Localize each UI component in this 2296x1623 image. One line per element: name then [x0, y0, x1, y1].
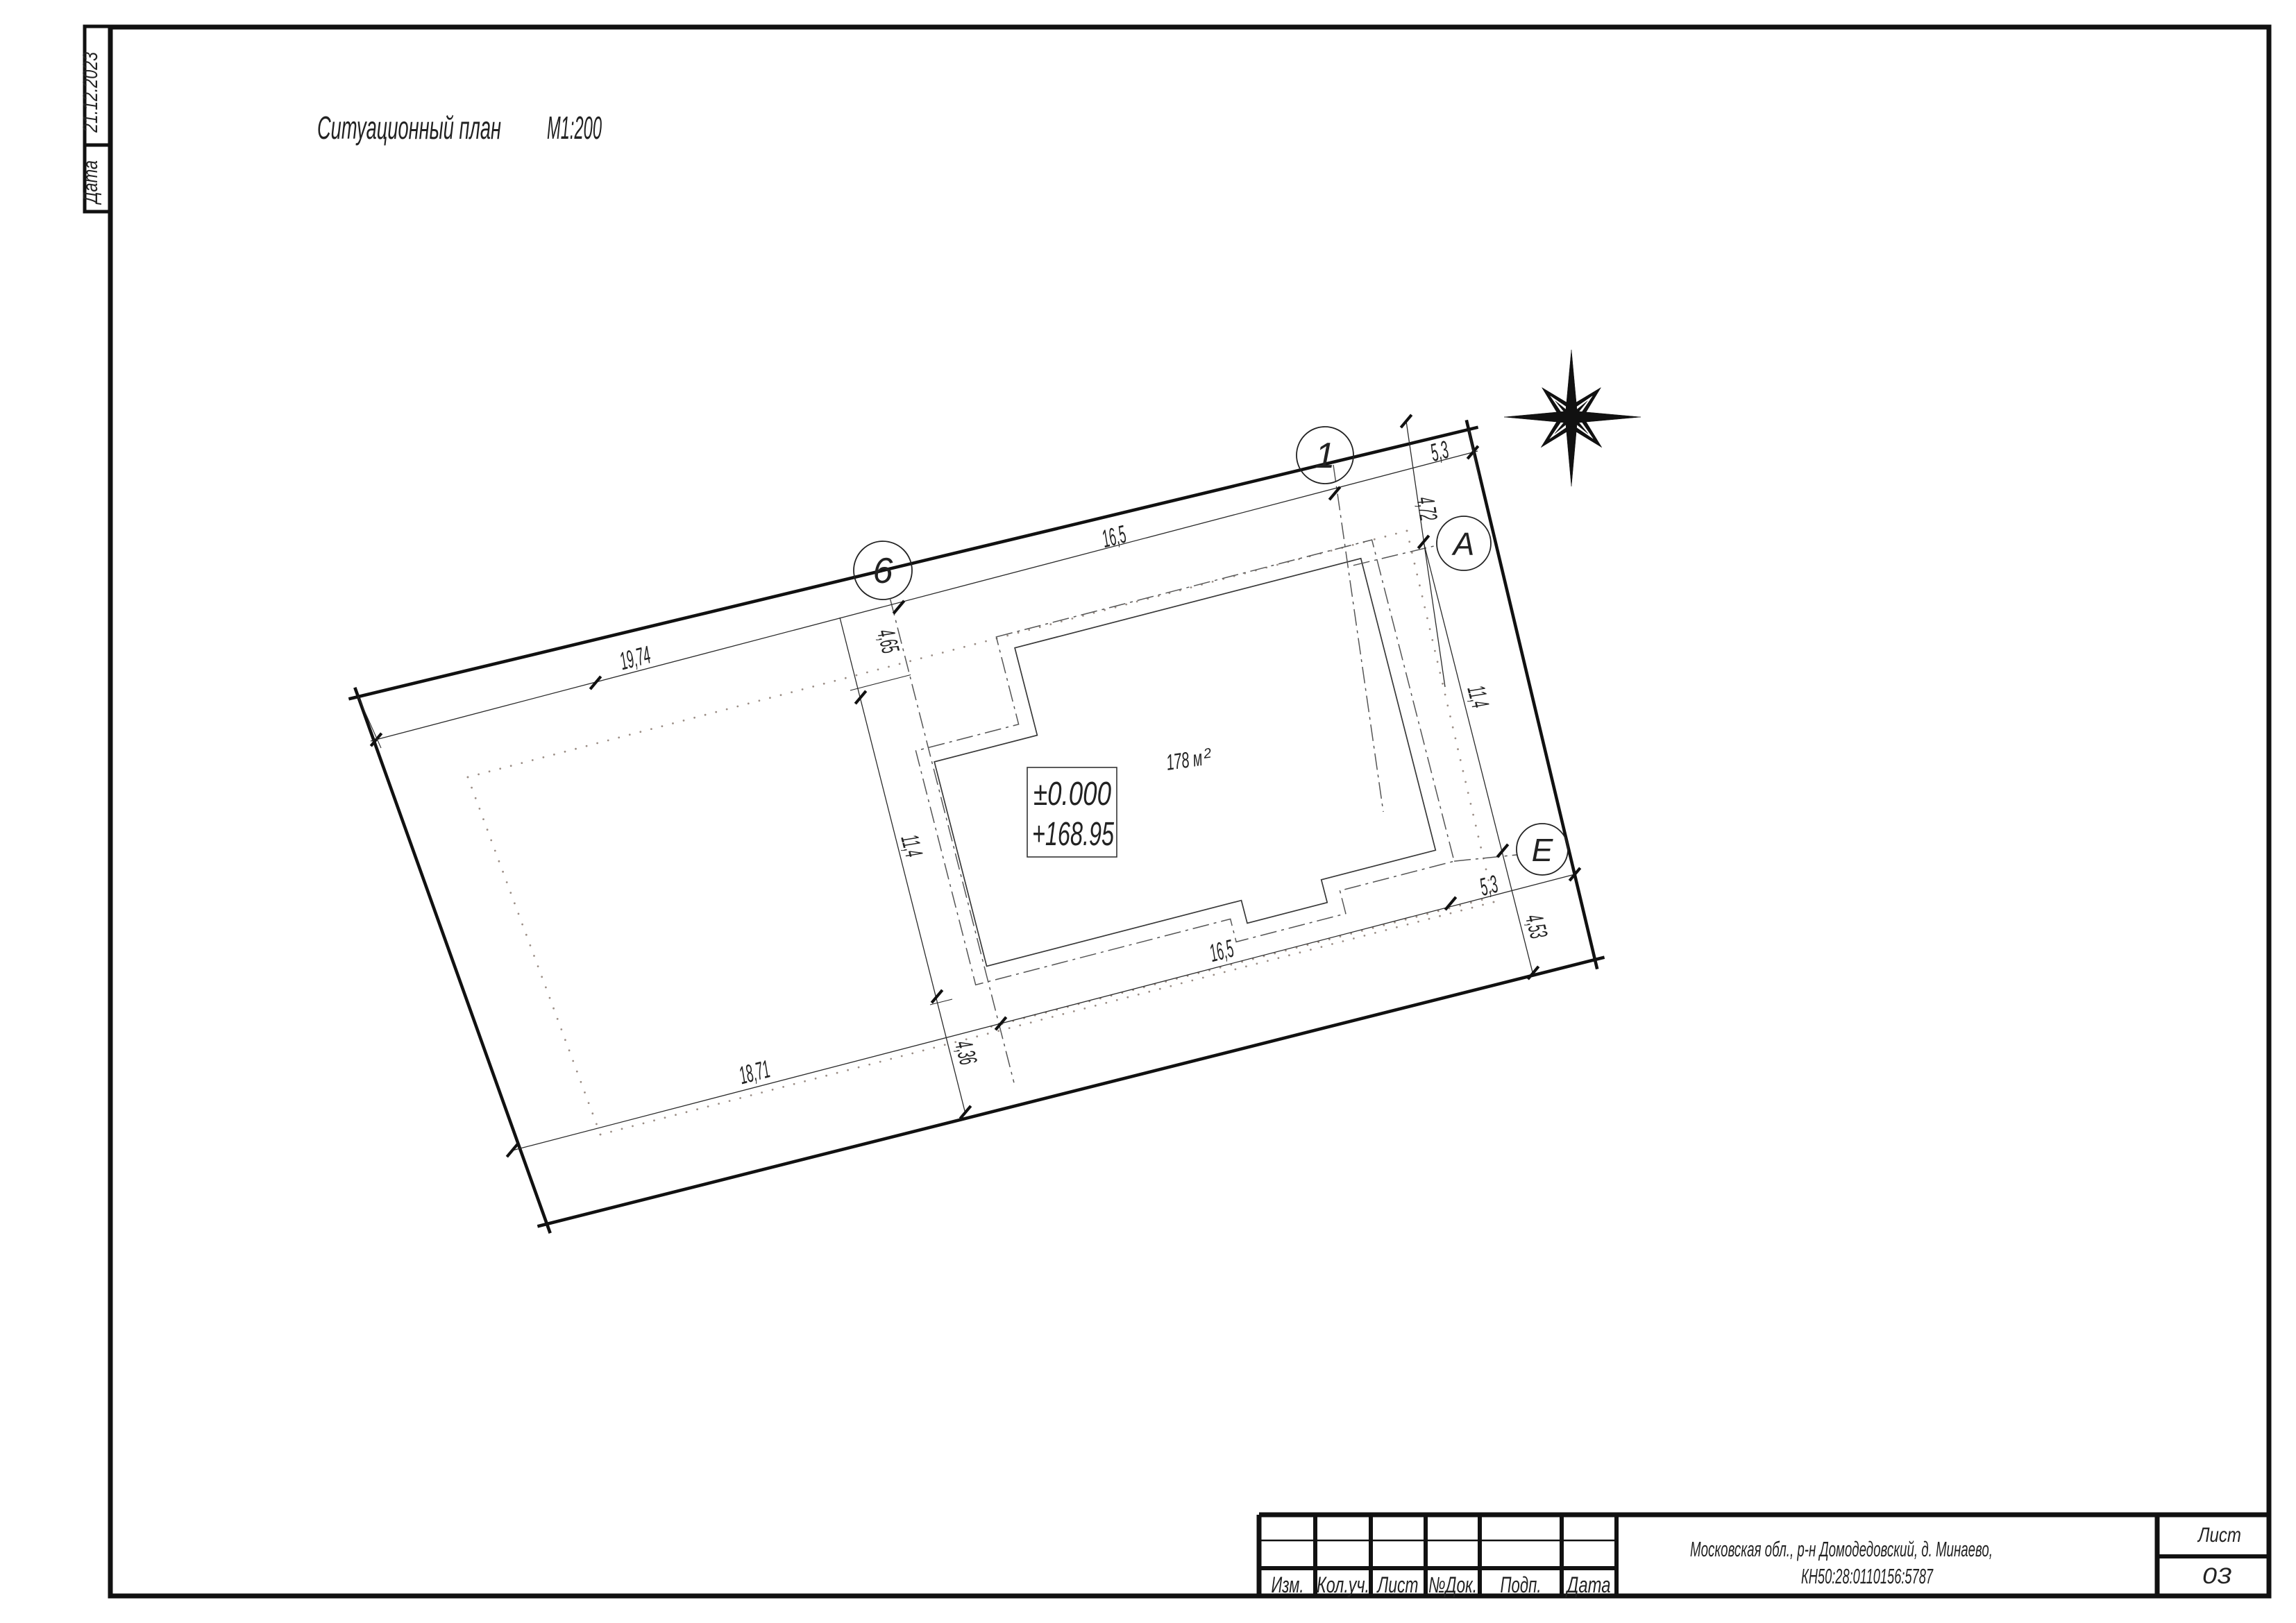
svg-text:03: 03 — [2202, 1563, 2231, 1588]
svg-text:Изм.: Изм. — [1272, 1572, 1304, 1597]
svg-text:21.12.2023: 21.12.2023 — [79, 52, 102, 133]
svg-text:178 м: 178 м — [1165, 745, 1204, 775]
svg-text:6: 6 — [873, 551, 893, 591]
svg-text:Московская обл., р-н Домодедов: Московская обл., р-н Домодедовский, д. М… — [1690, 1537, 1993, 1561]
svg-text:Ситуационный план: Ситуационный план — [317, 110, 501, 146]
svg-text:4,72: 4,72 — [1411, 495, 1443, 522]
svg-text:Е: Е — [1532, 832, 1554, 868]
svg-text:Кол.уч.: Кол.уч. — [1317, 1572, 1369, 1597]
svg-text:Лист: Лист — [1376, 1572, 1418, 1597]
svg-text:±0.000: ±0.000 — [1033, 776, 1111, 813]
svg-text:Дата: Дата — [1565, 1572, 1610, 1597]
svg-text:КН50:28:0110156:5787: КН50:28:0110156:5787 — [1801, 1564, 1934, 1588]
svg-text:№Док.: №Док. — [1428, 1572, 1477, 1597]
svg-text:Лист: Лист — [2197, 1524, 2241, 1547]
svg-text:Подп.: Подп. — [1501, 1572, 1542, 1597]
svg-text:1: 1 — [1315, 436, 1335, 476]
svg-text:Дата: Дата — [79, 160, 102, 205]
svg-text:М1:200: М1:200 — [547, 110, 602, 146]
svg-text:А: А — [1451, 526, 1475, 562]
svg-text:+168.95: +168.95 — [1032, 816, 1114, 853]
